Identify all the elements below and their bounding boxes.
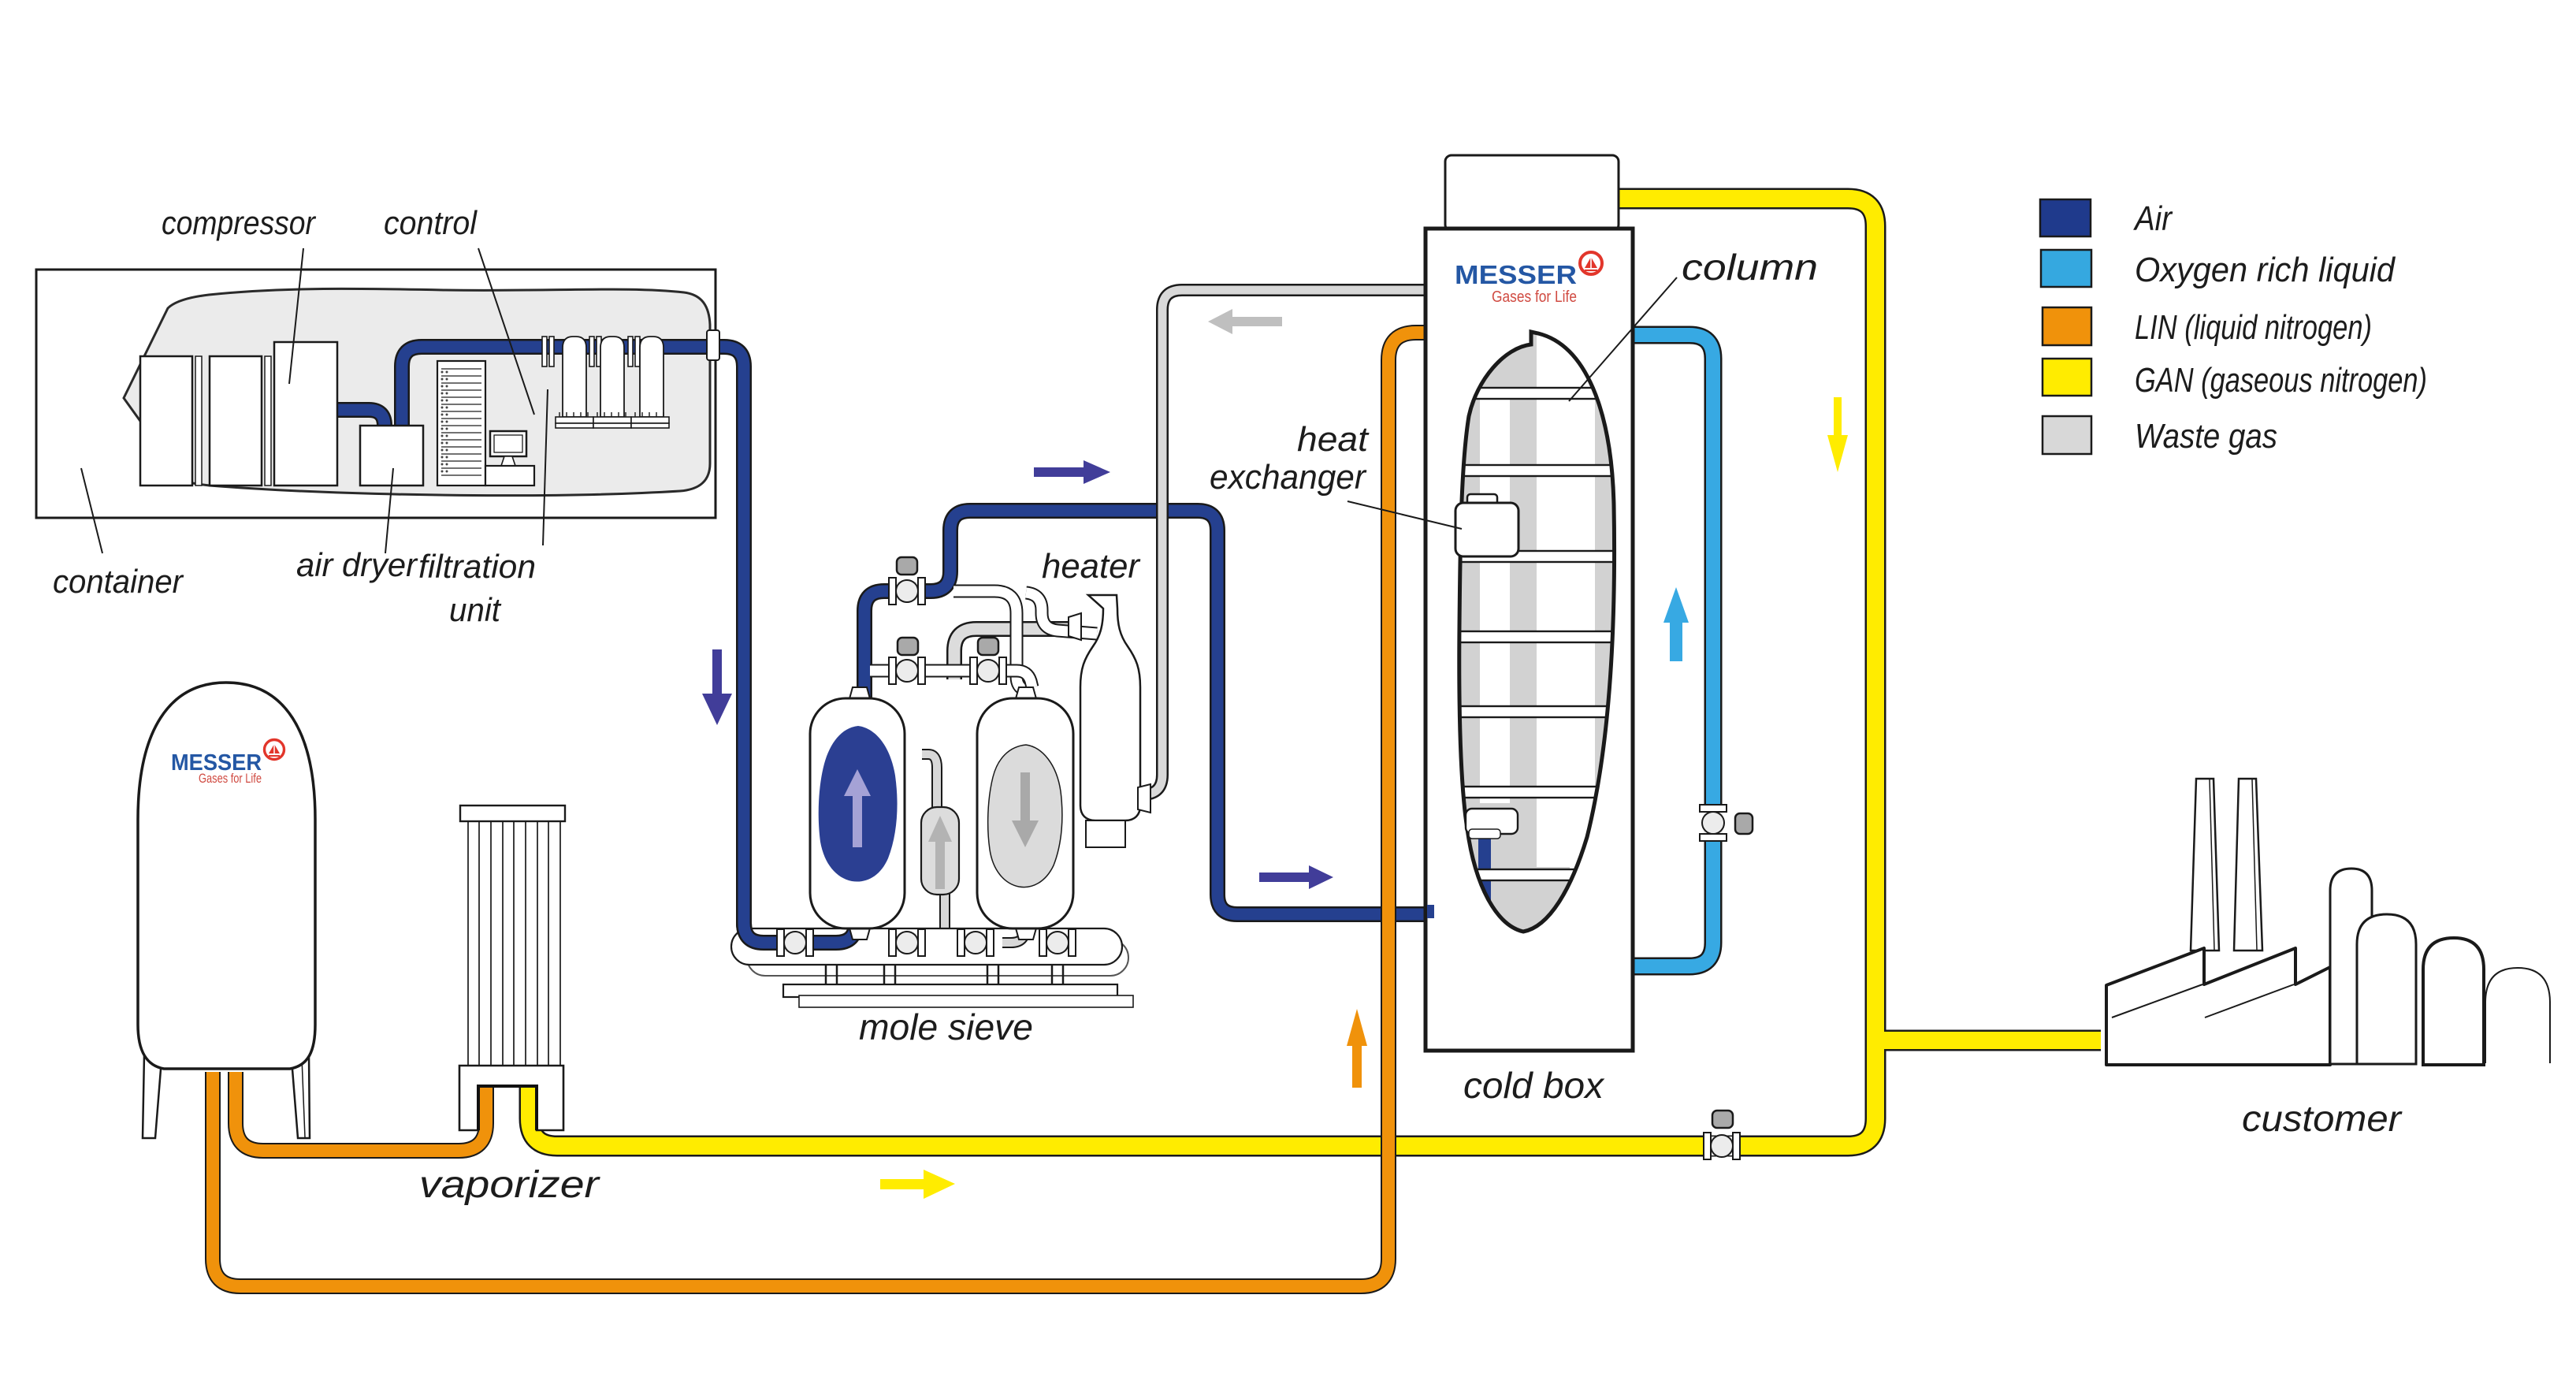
svg-text:unit: unit bbox=[449, 591, 502, 628]
svg-text:control: control bbox=[384, 204, 478, 241]
svg-text:Gases for Life: Gases for Life bbox=[1492, 288, 1577, 306]
svg-text:filtration: filtration bbox=[418, 548, 536, 585]
svg-text:heat: heat bbox=[1297, 420, 1370, 459]
svg-text:Air: Air bbox=[2132, 199, 2173, 238]
svg-text:air dryer: air dryer bbox=[296, 546, 418, 583]
svg-text:GAN (gaseous nitrogen): GAN (gaseous nitrogen) bbox=[2135, 361, 2427, 400]
svg-text:exchanger: exchanger bbox=[1210, 458, 1367, 497]
svg-text:customer: customer bbox=[2242, 1098, 2403, 1139]
svg-text:Waste gas: Waste gas bbox=[2135, 417, 2277, 456]
svg-text:LIN (liquid nitrogen): LIN (liquid nitrogen) bbox=[2135, 308, 2372, 347]
svg-text:Gases for Life: Gases for Life bbox=[199, 771, 262, 786]
svg-text:MESSER: MESSER bbox=[1455, 260, 1577, 289]
svg-text:compressor: compressor bbox=[162, 204, 317, 241]
svg-text:cold box: cold box bbox=[1463, 1065, 1605, 1106]
svg-text:vaporizer: vaporizer bbox=[419, 1164, 600, 1206]
svg-text:mole sieve: mole sieve bbox=[859, 1006, 1033, 1047]
svg-text:container: container bbox=[53, 563, 184, 600]
svg-text:column: column bbox=[1682, 247, 1818, 288]
svg-text:Oxygen rich liquid: Oxygen rich liquid bbox=[2135, 251, 2396, 289]
svg-text:heater: heater bbox=[1042, 547, 1141, 586]
